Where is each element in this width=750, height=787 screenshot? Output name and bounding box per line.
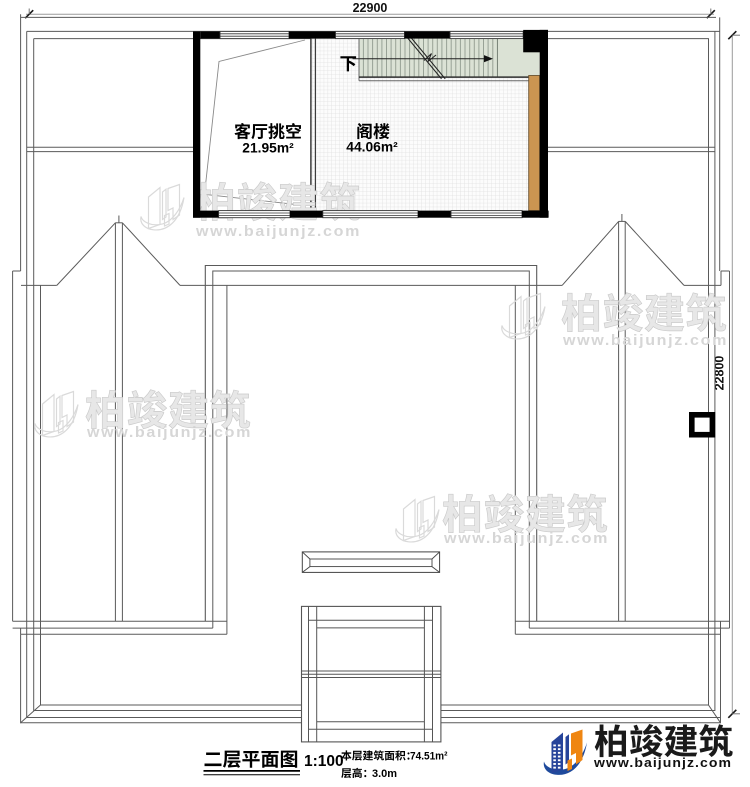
svg-text:www.baijunjz.com: www.baijunjz.com (593, 755, 732, 770)
svg-text:74.51m²: 74.51m² (410, 751, 448, 763)
svg-text:3.0m: 3.0m (372, 768, 397, 780)
svg-text:21.95m²: 21.95m² (242, 141, 294, 156)
svg-text:22900: 22900 (353, 1, 388, 15)
svg-text:www.baijunjz.com: www.baijunjz.com (86, 425, 252, 441)
svg-text:www.baijunjz.com: www.baijunjz.com (443, 531, 609, 547)
svg-text:www.baijunjz.com: www.baijunjz.com (195, 224, 361, 240)
svg-text:www.baijunjz.com: www.baijunjz.com (562, 333, 728, 349)
svg-text:1:100: 1:100 (304, 753, 344, 770)
svg-text:44.06m²: 44.06m² (346, 140, 398, 155)
